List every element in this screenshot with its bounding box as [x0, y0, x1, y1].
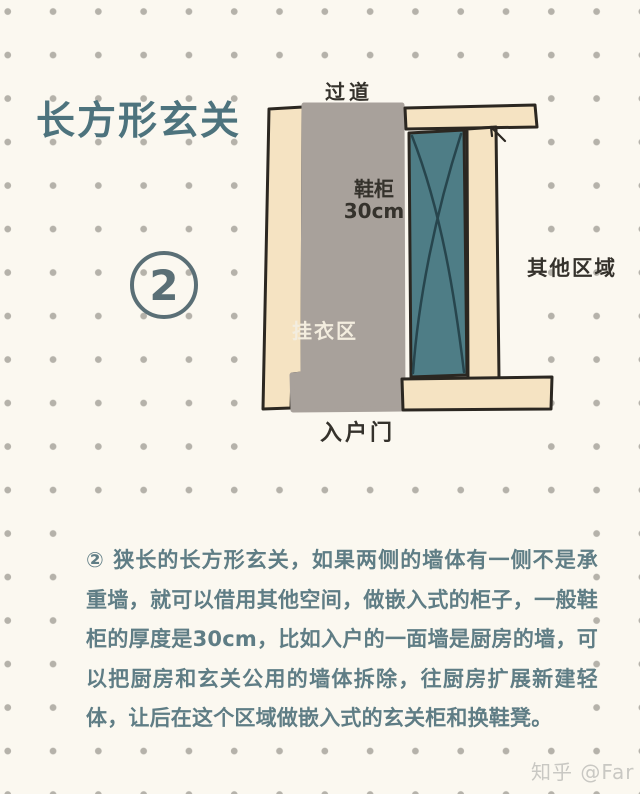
other-area-label: 其他区域 [527, 251, 617, 281]
shoe-cabinet-name-label: 鞋柜 [342, 178, 406, 200]
corridor-label: 过道 [303, 76, 395, 105]
page-title: 长方形玄关 [36, 90, 241, 146]
wall-bottom [402, 377, 552, 410]
shoe-cabinet-depth-label: 30cm [342, 200, 406, 222]
hanging-area-label: 挂衣区 [292, 315, 358, 344]
step-number-badge: 2 [130, 251, 198, 319]
entry-door-label: 入户门 [320, 415, 395, 447]
floorplan-drawing [246, 68, 566, 452]
floorplan-diagram: 过道 鞋柜 30cm 挂衣区 其他区域 入户门 [246, 68, 640, 452]
wall-right [467, 127, 499, 379]
shoe-cabinet-shape [409, 130, 467, 377]
description-text: ② 狭长的长方形玄关，如果两侧的墙体有一侧不是承重墙，就可以借用其他空间，做嵌入… [86, 541, 598, 739]
wall-top [405, 105, 537, 129]
floor-hanging-area [292, 105, 403, 410]
shoe-cabinet-label: 鞋柜 30cm [342, 178, 406, 222]
step-number: 2 [149, 261, 178, 310]
wall-left [263, 107, 303, 409]
zhihu-watermark: 知乎 @Far [531, 756, 635, 785]
